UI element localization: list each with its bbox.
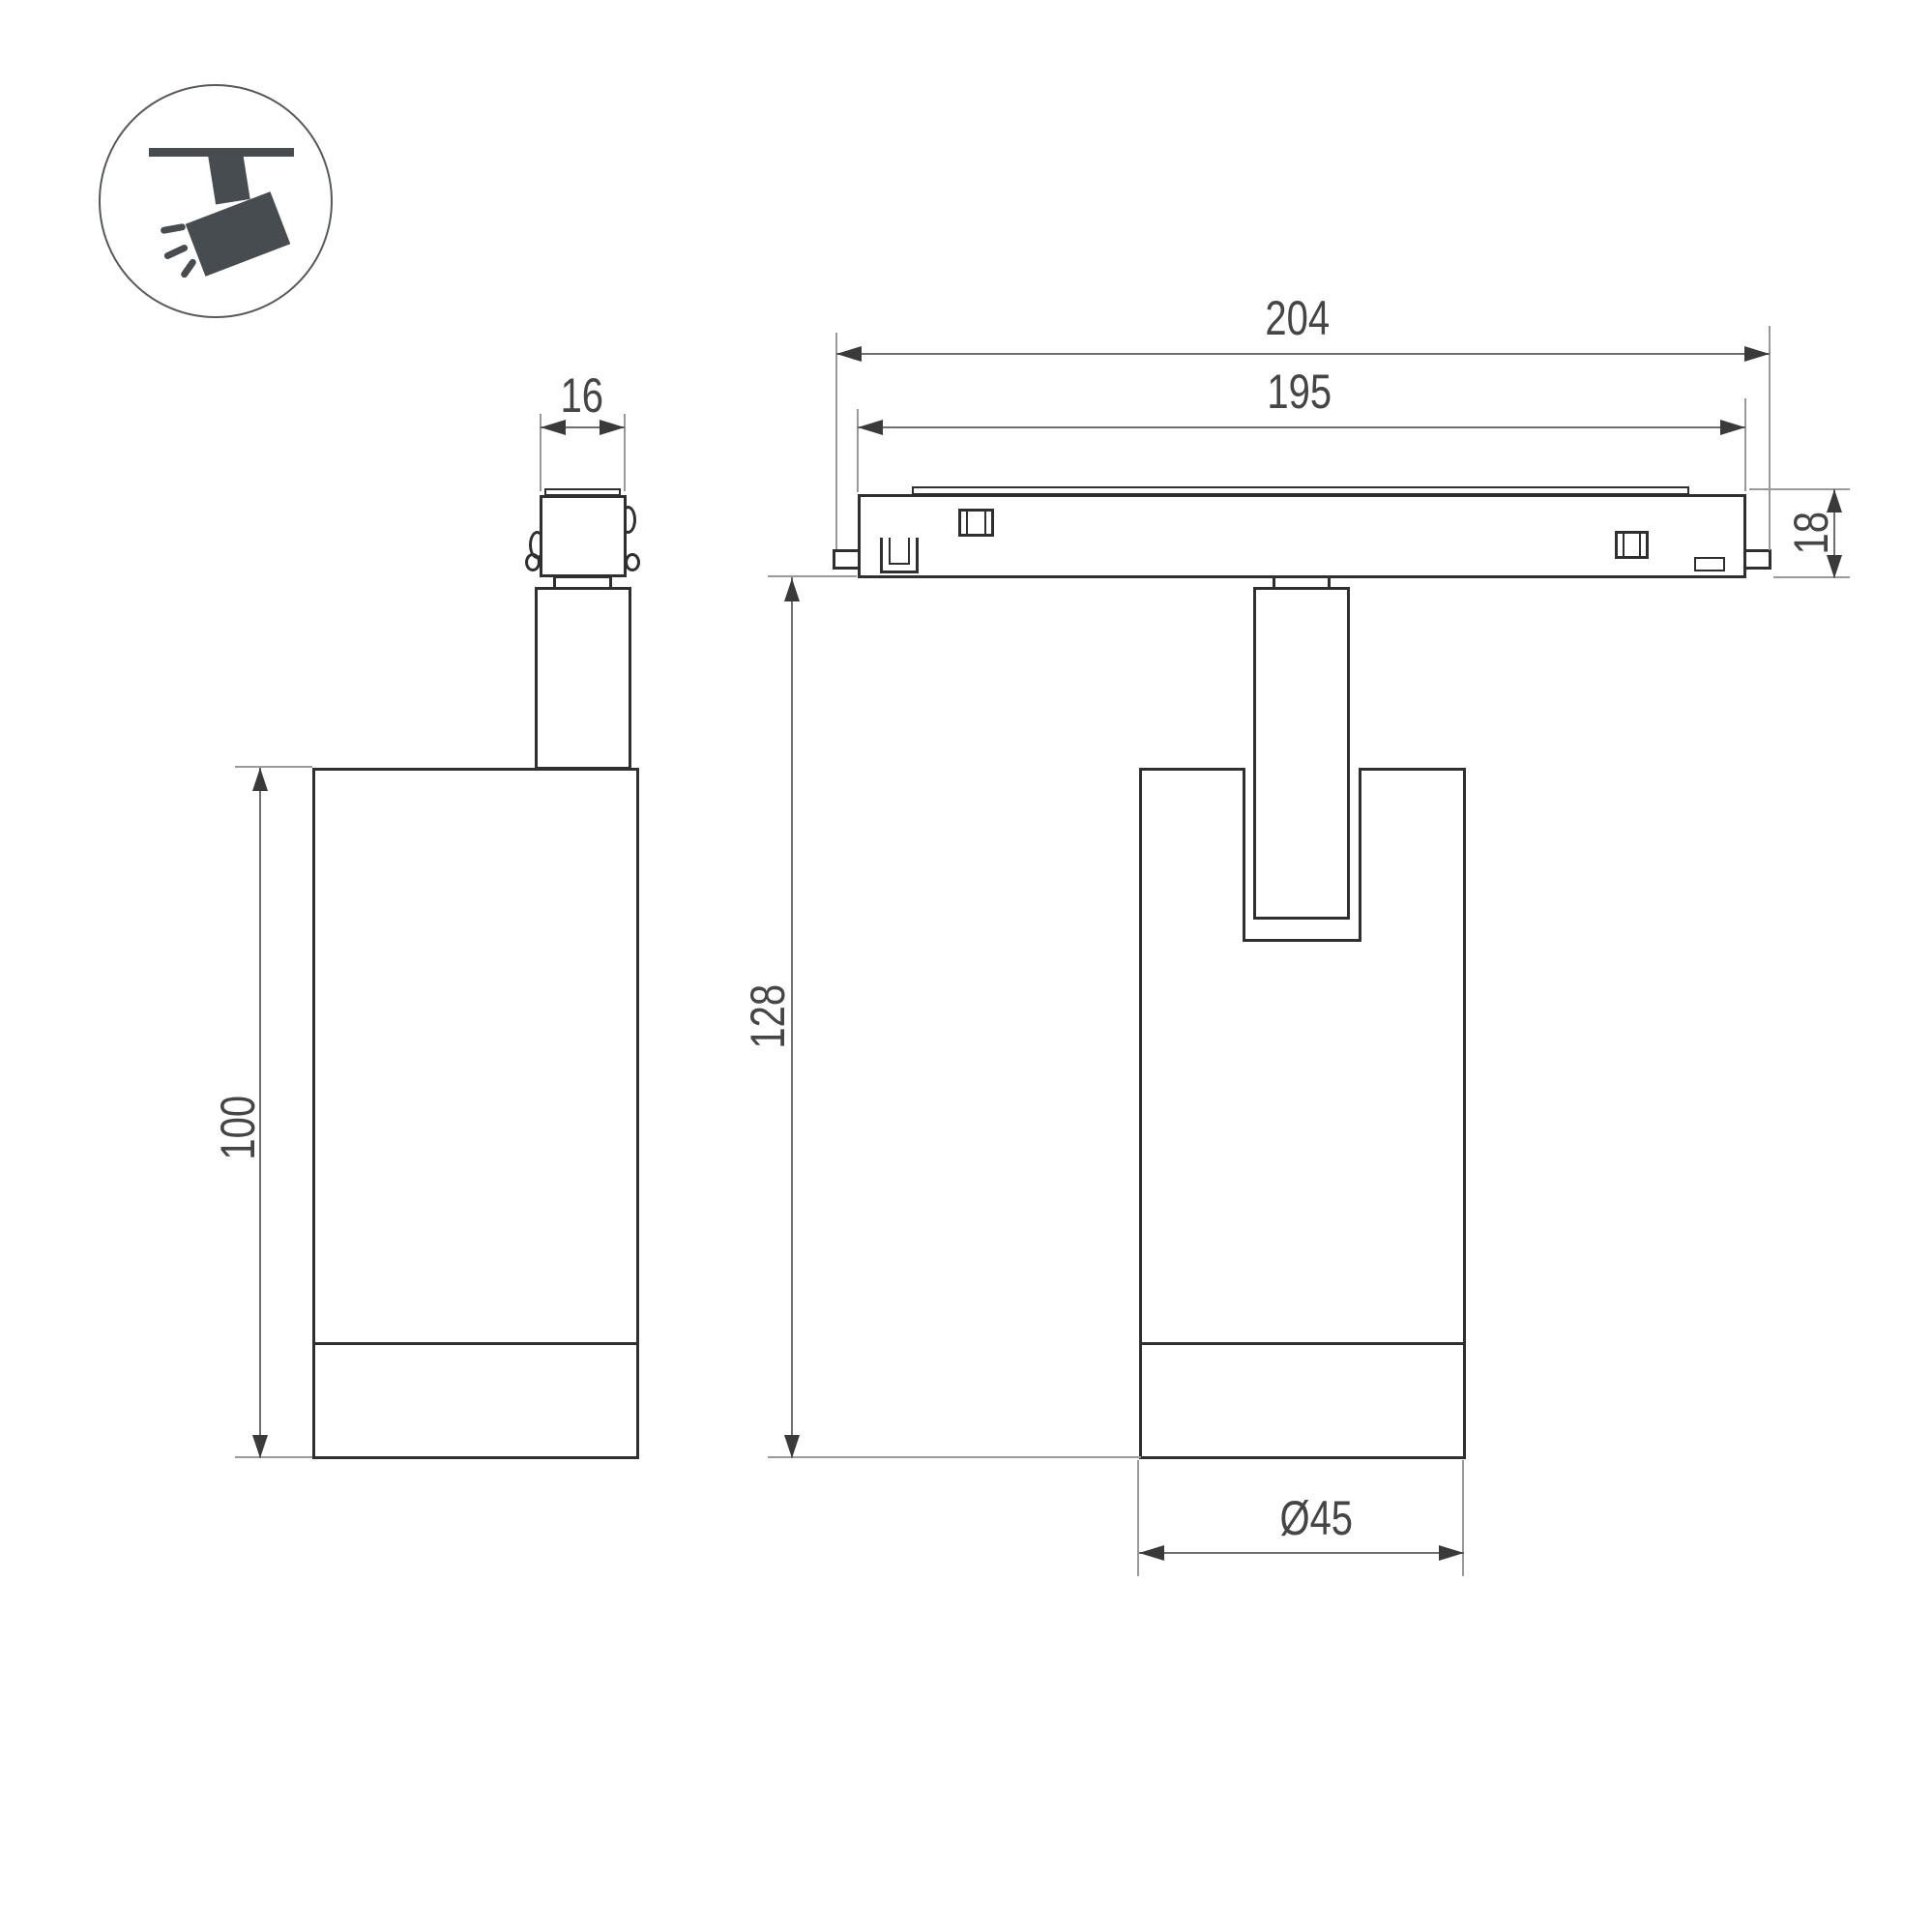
dimension-line <box>836 353 1770 355</box>
arrowhead-left <box>1139 1545 1164 1561</box>
track-u-clip-inner <box>889 538 910 565</box>
extension-line <box>235 766 312 768</box>
side-lamp-body <box>312 768 639 1459</box>
side-body-seam <box>315 1342 636 1345</box>
dimension-label: 100 <box>218 1050 258 1205</box>
arrowhead-left <box>836 346 862 362</box>
track-socket <box>1615 531 1649 559</box>
arrowhead-up <box>784 578 800 601</box>
dimension-label: 128 <box>747 939 788 1094</box>
drawing-canvas: 16 204 195 18 <box>0 0 1932 1932</box>
extension-line <box>768 1456 1141 1458</box>
arrowhead-right <box>1720 420 1745 435</box>
dimension-line <box>1139 1552 1464 1554</box>
track-socket-contacts <box>966 512 986 534</box>
arrowhead-right <box>1744 346 1770 362</box>
arrowhead-right <box>1439 1545 1464 1561</box>
arrowhead-down <box>252 1435 268 1458</box>
track-end-tab-right <box>1743 549 1771 570</box>
dimension-label: 195 <box>1222 371 1377 412</box>
extension-line <box>835 333 837 549</box>
track-end-tab-left <box>833 549 861 570</box>
icon-stem <box>208 151 249 204</box>
extension-line <box>768 575 857 577</box>
side-connector-box <box>540 495 627 577</box>
dimension-label: 16 <box>543 375 621 416</box>
connector-foot <box>525 553 541 571</box>
extension-line <box>235 1456 312 1458</box>
connector-foot <box>625 553 640 571</box>
arrowhead-left <box>858 420 883 435</box>
track-socket <box>958 509 994 537</box>
arrowhead-down <box>784 1435 800 1458</box>
dimension-label: 18 <box>1791 479 1831 587</box>
arrowhead-up <box>252 768 268 791</box>
track-slot-detail <box>1694 557 1725 571</box>
dimension-label: Ø45 <box>1239 1498 1393 1538</box>
dimension-label: 204 <box>1220 298 1375 338</box>
dimension-line <box>858 426 1745 428</box>
extension-line <box>1744 398 1746 491</box>
side-stem <box>535 587 631 770</box>
front-stem <box>1253 587 1350 920</box>
track-socket-contacts <box>1623 534 1641 556</box>
front-body-seam <box>1142 1342 1463 1345</box>
